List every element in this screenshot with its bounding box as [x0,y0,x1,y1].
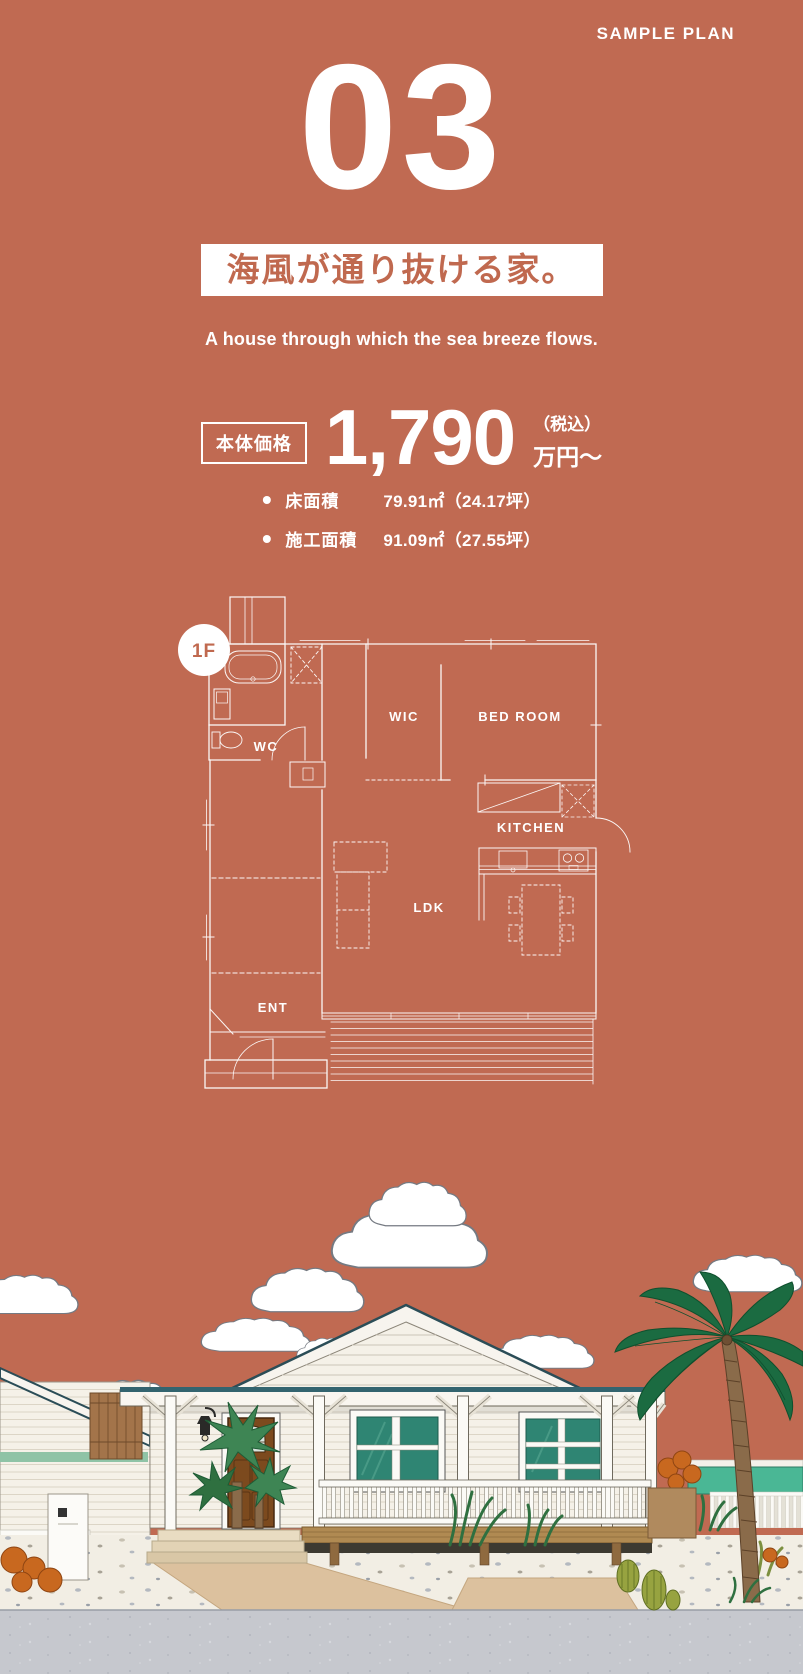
plan-entry-porch [205,1060,327,1088]
porch-railing [319,1480,651,1524]
plan-refrigerator-box [562,785,594,817]
room-label-ent: ENT [258,1000,289,1015]
plan-storage-inner [303,768,313,780]
price-amount: 1,790 [325,402,515,474]
plan-counter-panel [479,848,484,920]
plan-title-box: 海風が通り抜ける家。 [201,244,603,296]
spec-value: 79.91㎡（24.17坪） [383,487,540,512]
plan-closet-diagonal [478,783,560,812]
plan-burner [563,854,571,862]
white-fence [710,1492,803,1528]
porch-steps [147,1530,307,1563]
floor-badge: 1F [178,624,230,676]
plan-toilet-bowl [220,732,242,748]
driveway-patch [452,1578,638,1610]
spec-row-construction-area: 施工面積 91.09㎡（27.55坪） [262,526,540,551]
room-label-wic: WIC [389,709,419,724]
sample-plan-page: SAMPLE PLAN 03 海風が通り抜ける家。 A house throug… [0,0,803,1674]
plan-linen-divider [245,597,252,644]
road-speckles [0,1610,803,1674]
plan-subtitle: A house through which the sea breeze flo… [0,329,803,350]
plan-wall [209,725,260,760]
plan-counter-edge [479,866,596,870]
plan-storage [290,762,325,787]
price-unit: 万円〜 [533,438,602,472]
plan-number: 03 [0,38,803,216]
plan-tick [203,639,601,937]
plan-title: 海風が通り抜ける家。 [227,252,577,288]
plan-vanity-sink [217,692,228,703]
plan-sofa [334,842,387,948]
plan-toilet-tank [212,732,220,748]
plan-faucet [511,868,515,872]
spec-label: 床面積 [285,487,383,512]
plan-kitchen-counter [479,848,596,874]
spec-label: 施工面積 [285,526,383,551]
room-label-kitchen: KITCHEN [497,820,565,835]
plan-door-arc [596,818,630,852]
room-label-bedroom: BED ROOM [478,709,562,724]
plan-deck [331,1019,593,1084]
plan-linen-closet [230,597,285,644]
floor-plan: WC WIC BED ROOM KITCHEN LDK ENT 1F [165,575,635,1095]
plan-sliding-divider [322,1013,596,1019]
planter-box [648,1488,696,1538]
sign-pillar [48,1494,88,1580]
house-illustration [0,1090,803,1674]
price-tax-note: （税込） [533,410,601,435]
plan-bathtub-inner [229,655,277,679]
plan-partition [212,878,320,973]
plan-bathtub [225,651,281,683]
room-label-wc: WC [254,739,279,754]
spec-row-floor-area: 床面積 79.91㎡（24.17坪） [262,487,540,512]
plan-dining-set [509,885,573,955]
plan-entry-angle [210,1009,233,1034]
room-label-ldk: LDK [413,900,444,915]
bullet-icon [262,496,270,504]
plan-sink [499,851,527,868]
price-block: 本体価格 1,790 （税込） 万円〜 [0,402,803,474]
plan-washer-box [291,647,322,683]
plan-burner [575,854,583,862]
plan-stove [559,850,588,871]
bullet-icon [262,535,270,543]
spec-value: 91.09㎡（27.55坪） [383,526,540,551]
spec-list: 床面積 79.91㎡（24.17坪） 施工面積 91.09㎡（27.55坪） [262,487,540,551]
price-label: 本体価格 [201,422,307,464]
floor-badge-label: 1F [192,641,216,662]
price-unit-column: （税込） 万円〜 [533,410,602,472]
